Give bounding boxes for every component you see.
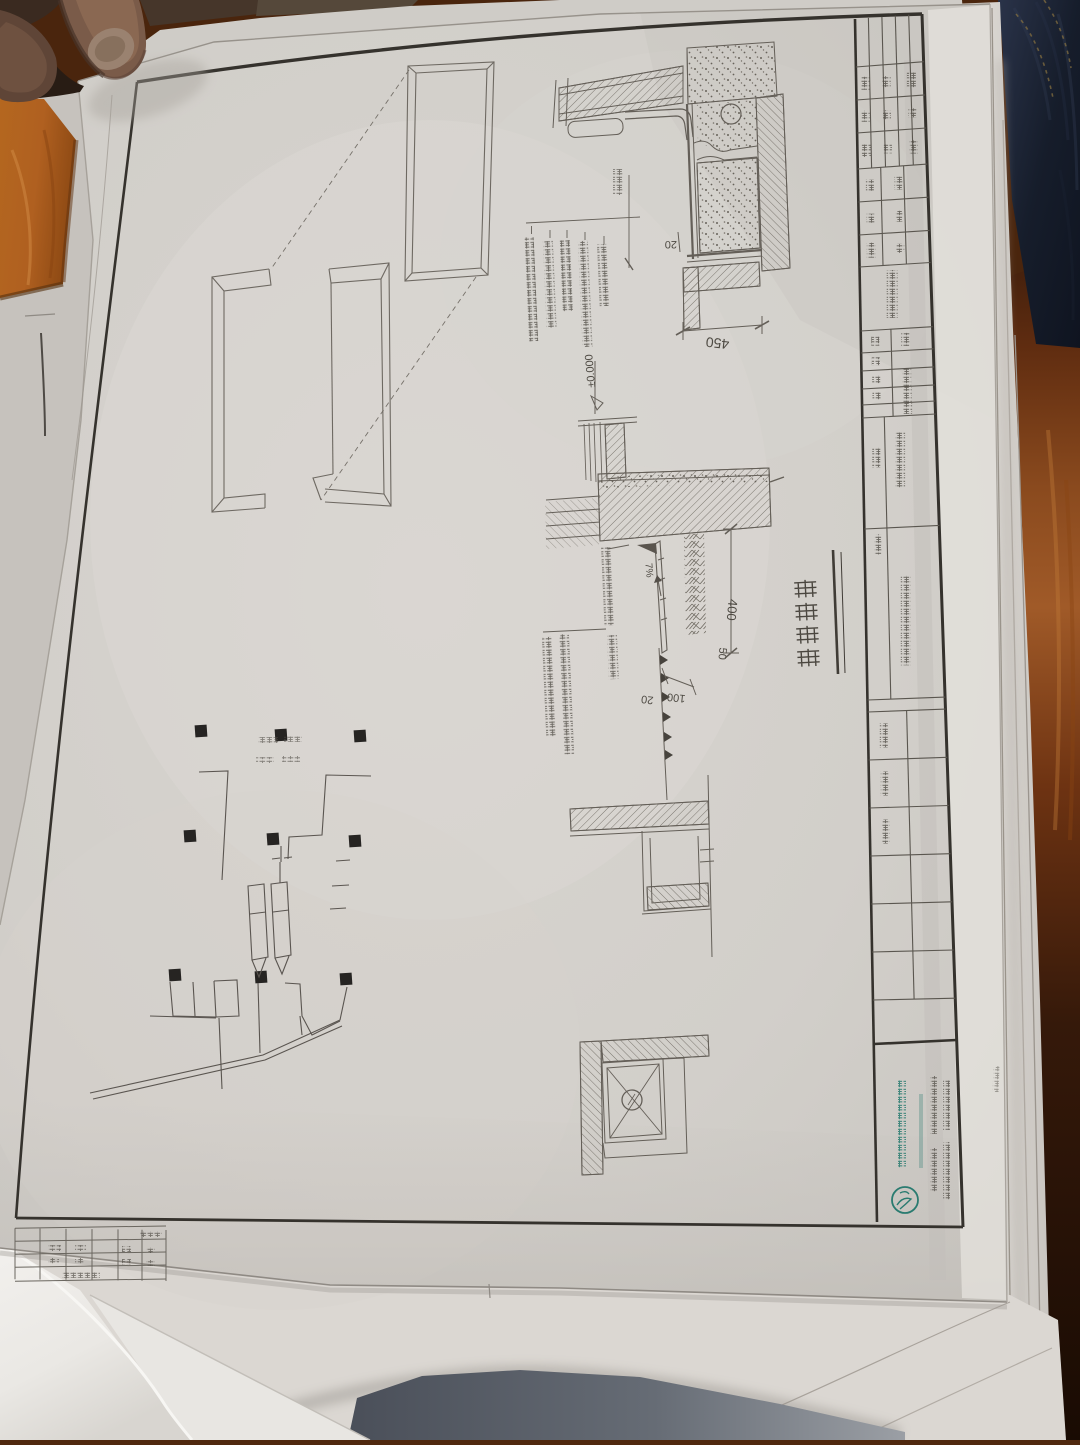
- svg-text:50: 50: [715, 647, 728, 660]
- svg-text:100: 100: [667, 690, 687, 704]
- svg-text:20: 20: [641, 693, 654, 706]
- svg-text:450: 450: [705, 334, 730, 352]
- svg-text:20: 20: [665, 238, 677, 250]
- svg-text:7%: 7%: [642, 563, 654, 578]
- svg-text:400: 400: [724, 598, 741, 621]
